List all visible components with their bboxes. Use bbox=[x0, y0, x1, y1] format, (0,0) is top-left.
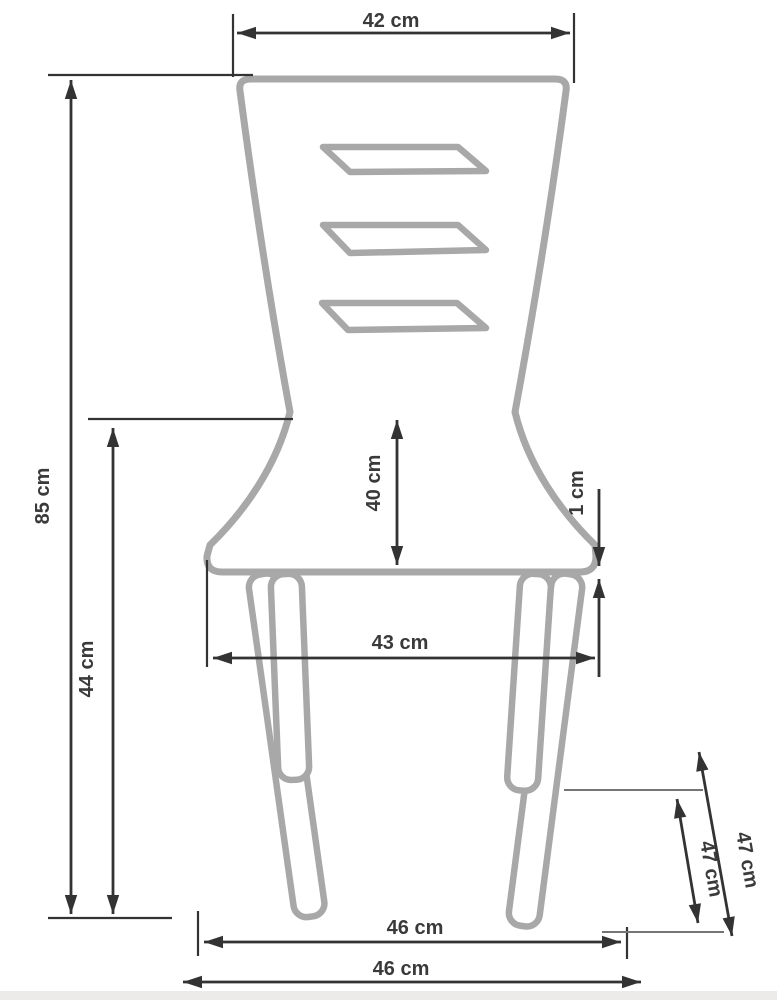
dim-seat-width-label: 43 cm bbox=[372, 632, 429, 654]
dim-rear-leg-length-label: 47 cm bbox=[695, 839, 727, 899]
backrest-slot-2 bbox=[323, 225, 486, 253]
diagram-canvas: 42 cm 85 cm 44 cm 40 cm 1 cm 43 cm 46 cm bbox=[0, 0, 777, 1000]
dim-top-width: 42 cm bbox=[233, 10, 574, 83]
dim-overall-base-width: 46 cm bbox=[183, 958, 641, 982]
dim-front-leg-length-label: 47 cm bbox=[731, 830, 763, 890]
dim-front-leg-stance-label: 46 cm bbox=[387, 917, 444, 939]
dim-top-width-label: 42 cm bbox=[363, 10, 420, 32]
rear-left-leg bbox=[270, 573, 309, 780]
dim-seat-thickness-label: 1 cm bbox=[566, 470, 588, 516]
dim-rear-leg-length-arrow bbox=[677, 799, 698, 923]
dim-seat-height-label: 44 cm bbox=[76, 641, 98, 698]
dim-overall-height: 85 cm bbox=[32, 75, 253, 918]
backrest-slot-1 bbox=[323, 147, 486, 172]
chair-dimension-diagram: 42 cm 85 cm 44 cm 40 cm 1 cm 43 cm 46 cm bbox=[0, 0, 777, 1000]
dim-front-leg-stance: 46 cm bbox=[198, 911, 627, 959]
dim-backrest-height-label: 40 cm bbox=[363, 455, 385, 512]
dim-overall-height-label: 85 cm bbox=[32, 468, 54, 525]
backrest-slot-3 bbox=[322, 303, 486, 330]
footer-strip bbox=[0, 991, 777, 1000]
dim-overall-base-width-label: 46 cm bbox=[373, 958, 430, 980]
dim-leg-lengths: 47 cm 47 cm bbox=[564, 752, 763, 936]
